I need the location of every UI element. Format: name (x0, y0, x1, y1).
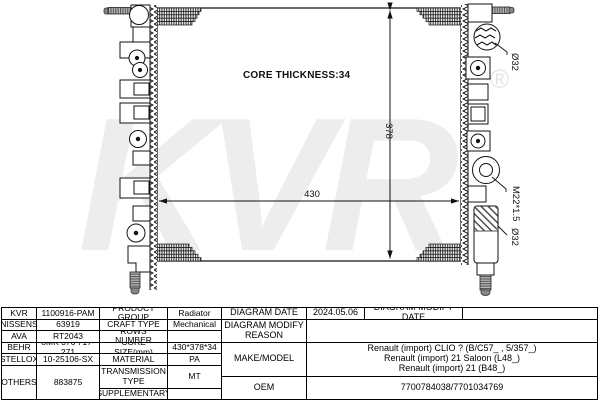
value-cell (168, 331, 222, 343)
make-model-label: MAKE/MODEL (222, 343, 307, 378)
number-cell: RT2043 (37, 331, 100, 343)
number-cell: 10-25106-SX (37, 354, 100, 366)
make-model-line: Renault (import) 21 (B48_) (308, 364, 596, 374)
value-cell: 430*378*34 (168, 343, 222, 355)
diagram-modify-date-value (463, 308, 598, 320)
property-cell: PRODUCT GROUP (100, 308, 168, 320)
left-mount-peg (130, 272, 140, 288)
oem-value: 7700784038/7701034769 (307, 377, 598, 400)
brand-cell: KVR (2, 308, 37, 320)
top-port-leader (495, 43, 507, 55)
value-cell: MT (168, 366, 222, 389)
right-mount-peg (480, 275, 491, 290)
value-cell: Mechanical (168, 320, 222, 332)
brand-cell: OTHERS (2, 366, 37, 401)
right-tank (461, 4, 514, 296)
number-cell: 63919 (37, 320, 100, 332)
registered-watermark: ® (490, 64, 509, 94)
diagram-date-value: 2024.05.06 (307, 308, 365, 320)
diagram-modify-reason-label: DIAGRAM MODIFY REASON (222, 320, 307, 343)
radiator-diagram: KVR ® (0, 0, 600, 307)
core-thickness-label: CORE THICKNESS:34 (243, 70, 351, 81)
diagram-modify-date-label: DIAGRAM MODIFY DATE (365, 308, 463, 320)
bottom-port-label: Ø32 (509, 228, 520, 246)
property-cell: MATERIAL (100, 354, 168, 366)
value-cell: Radiator (168, 308, 222, 320)
inlet-pipe (108, 8, 131, 15)
brand-cell: BEHR (2, 343, 37, 355)
property-cell: ROWS NUMBER (100, 331, 168, 343)
number-cell: 1100916-PAM (37, 308, 100, 320)
property-cell: SUPPLEMENTARY (100, 389, 168, 401)
value-cell (168, 389, 222, 401)
value-cell: PA (168, 354, 222, 366)
width-dim-label: 430 (304, 189, 320, 200)
top-port-pipe (492, 7, 510, 14)
drain-plug-leader (492, 177, 506, 192)
inlet-flange (130, 6, 149, 25)
drain-plug-label: M22*1.5 (510, 186, 521, 221)
diagram-date-label: DIAGRAM DATE (222, 308, 307, 320)
number-cell: 883875 (37, 366, 100, 401)
brand-cell: STELLOX (2, 354, 37, 366)
diagram-modify-reason-value (307, 320, 598, 343)
part-numbers-table: KVR 1100916-PAM PRODUCT GROUP Radiator N… (1, 307, 222, 400)
left-tank-serration (150, 5, 157, 290)
number-cell: 8MK 376 717-271 (37, 343, 100, 355)
oem-label: OEM (222, 377, 307, 400)
property-cell: TRANSMISSION TYPE (100, 366, 168, 389)
height-dim-label: 378 (383, 123, 394, 139)
property-cell: CORE SIZE(mm) (100, 343, 168, 355)
brand-cell: NISSENS (2, 320, 37, 332)
bottom-port-leader (498, 226, 507, 235)
brand-cell: AVA (2, 331, 37, 343)
top-port-label: Ø32 (509, 53, 520, 71)
diagram-info-table: DIAGRAM DATE 2024.05.06 DIAGRAM MODIFY D… (221, 307, 598, 400)
property-cell: CRAFT TYPE (100, 320, 168, 332)
make-model-value: Renault (import) CLIO ? (B/C57_ , 5/357_… (307, 343, 598, 378)
catalog-page: KVR ® (0, 0, 600, 402)
